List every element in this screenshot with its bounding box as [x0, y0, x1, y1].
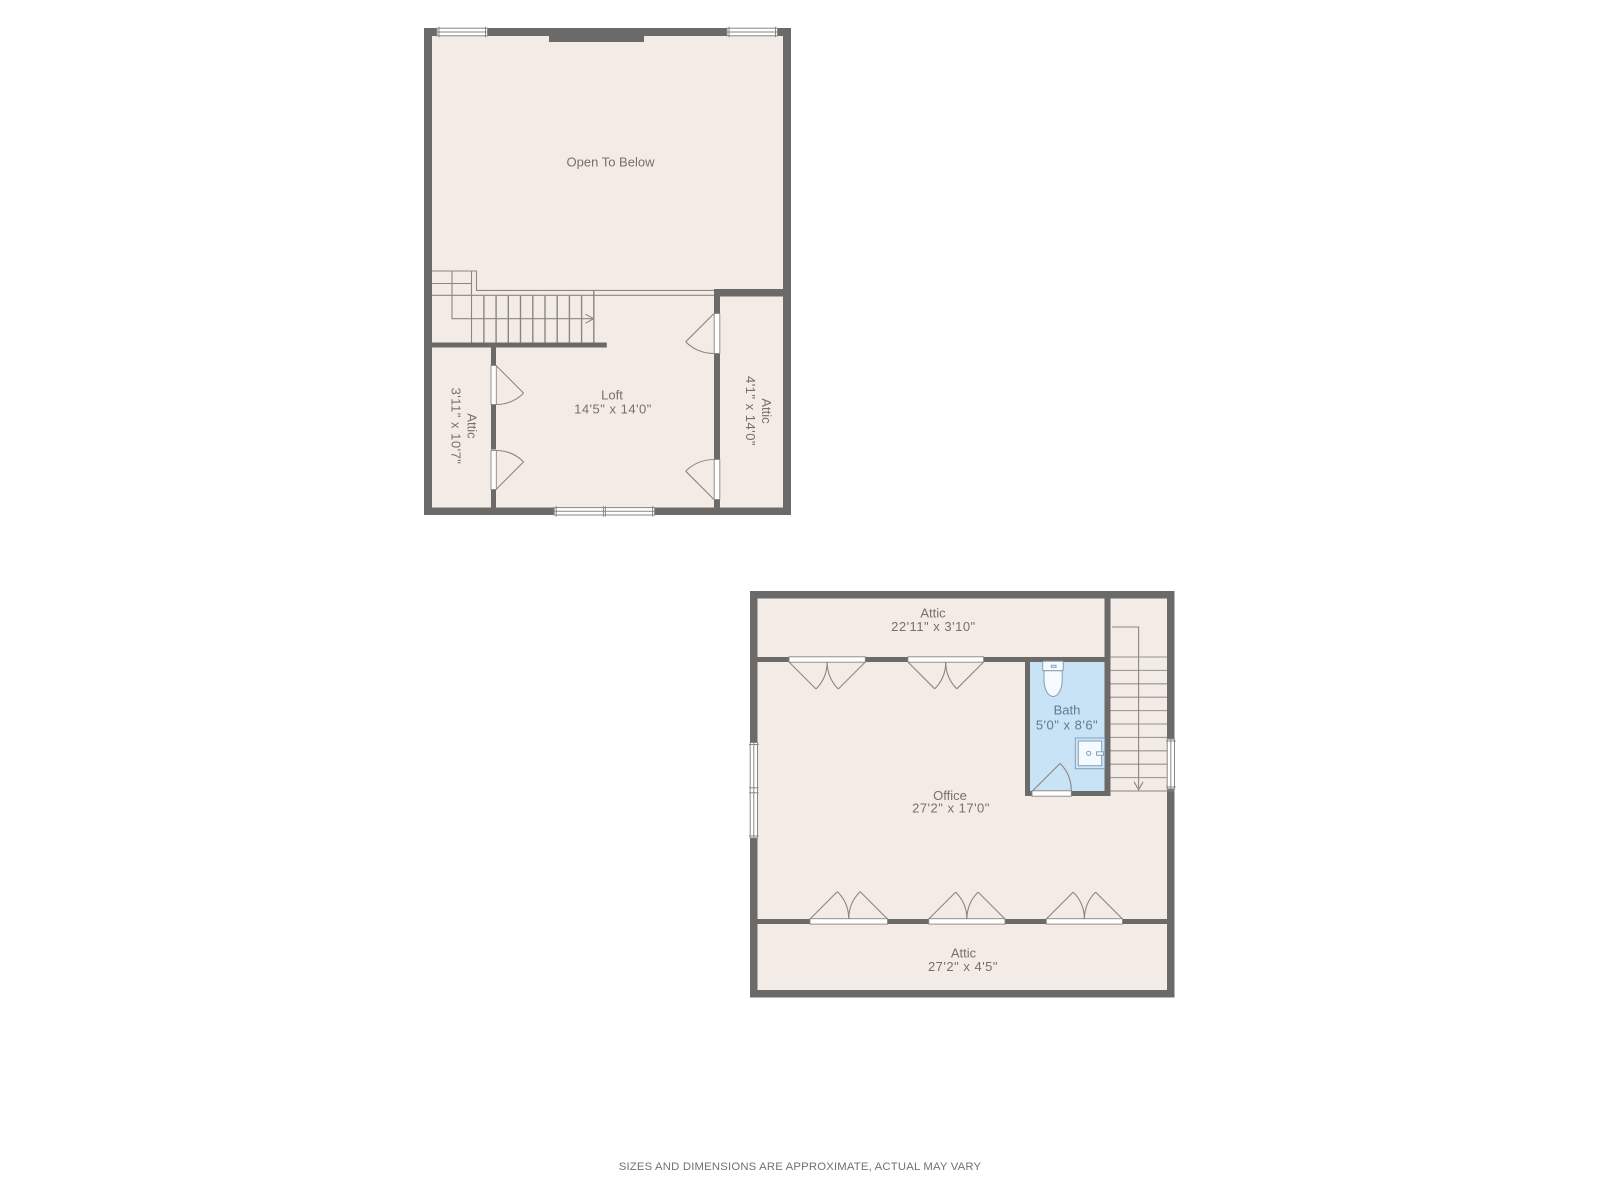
svg-text:SIZES AND DIMENSIONS ARE APPRO: SIZES AND DIMENSIONS ARE APPROXIMATE, AC…	[619, 1161, 982, 1173]
svg-text:Attic: Attic	[759, 398, 774, 424]
svg-text:Open To Below: Open To Below	[567, 155, 656, 170]
svg-text:Bath: Bath	[1054, 703, 1081, 718]
svg-text:5'0" x 8'6": 5'0" x 8'6"	[1036, 718, 1098, 733]
svg-text:27'2" x 17'0": 27'2" x 17'0"	[912, 800, 990, 815]
svg-text:14'5" x 14'0": 14'5" x 14'0"	[574, 401, 652, 416]
svg-text:4'1" x 14'0": 4'1" x 14'0"	[743, 376, 758, 446]
svg-text:27'2" x 4'5": 27'2" x 4'5"	[928, 959, 998, 974]
svg-text:Attic: Attic	[465, 413, 480, 439]
svg-text:3'11" x 10'7": 3'11" x 10'7"	[449, 388, 464, 465]
svg-text:Loft: Loft	[601, 388, 623, 403]
svg-text:22'11" x 3'10": 22'11" x 3'10"	[891, 619, 976, 634]
